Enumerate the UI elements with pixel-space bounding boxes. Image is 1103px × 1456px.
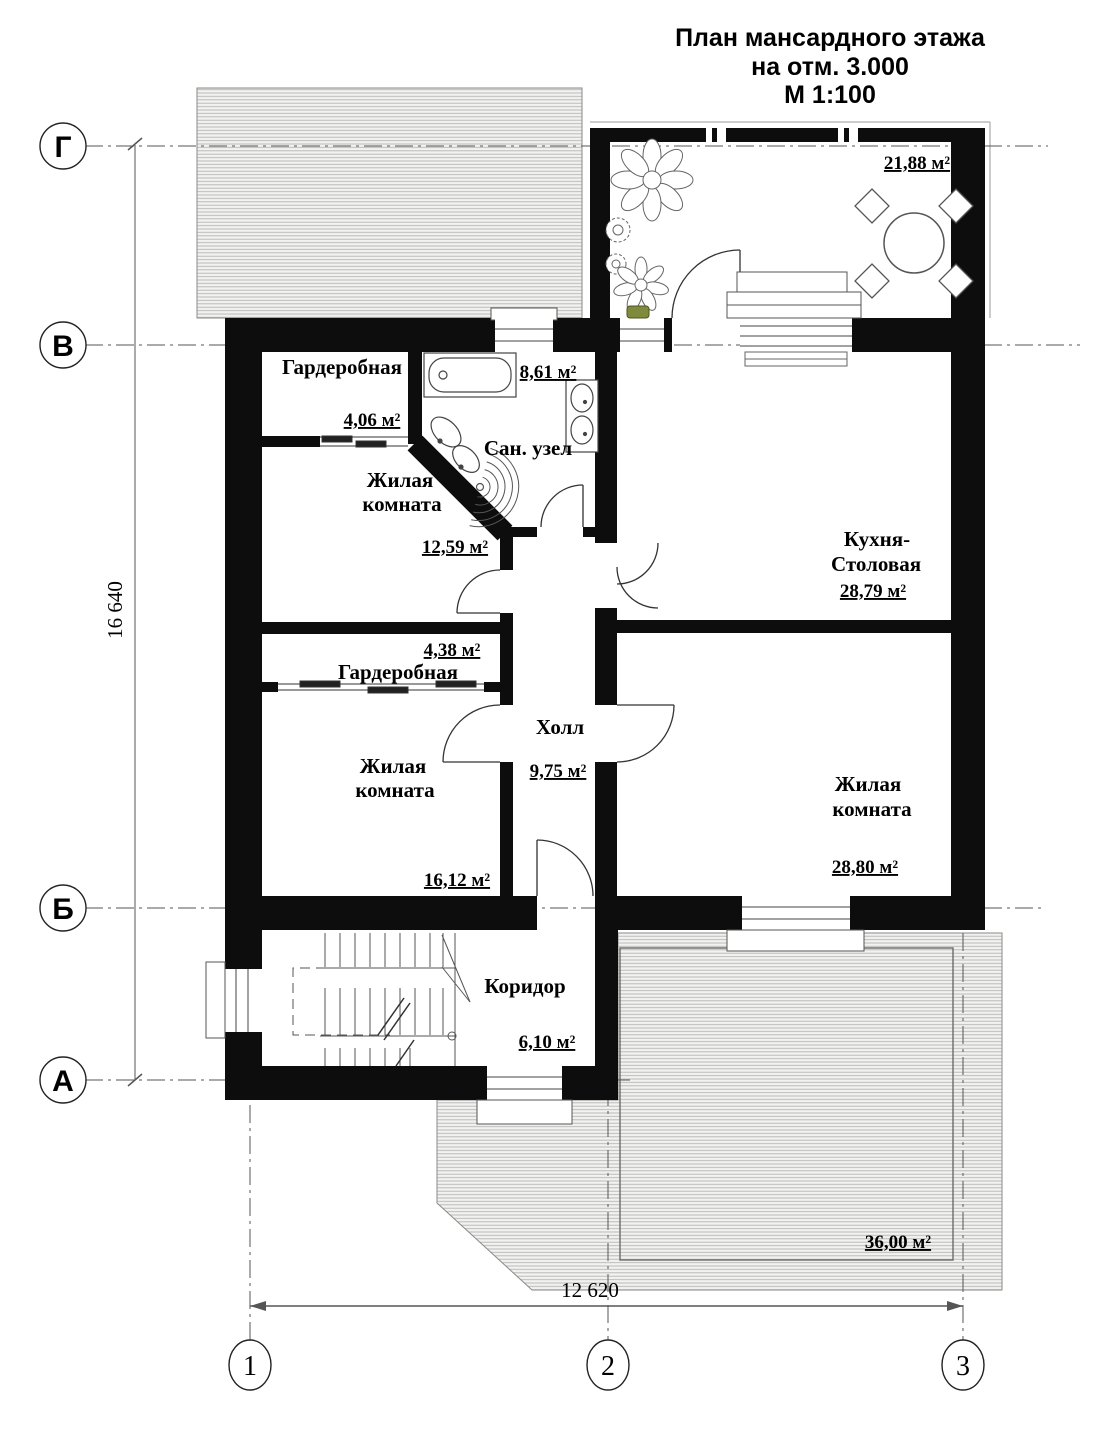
floor-plan-page: 16 640 12 620 [0,0,1103,1456]
title-line-1: План мансардного этажа [675,24,986,52]
dimension-height-label: 16 640 [103,581,127,639]
room-label: комната [355,778,435,802]
axis-marker-label: Г [54,131,71,164]
floor-plan-drawing: 16 640 12 620 [0,0,1103,1456]
room-label: Гардеробная [282,355,402,379]
plant-icon-small-1 [606,218,630,242]
roof-hatch-top-left [197,88,582,318]
room-area-label: 12,59 м² [422,537,488,558]
bathtub-icon [424,353,516,397]
staircase [293,933,470,1066]
room-label: Коридор [484,974,565,998]
room-label: комната [832,797,912,821]
room-area-label: 28,79 м² [840,581,906,602]
axis-marker-label: А [52,1065,74,1098]
plant-pot-icon [627,306,649,318]
drawing-title: План мансардного этажа на отм. 3.000 М 1… [675,24,986,109]
axis-marker-label: 1 [243,1351,257,1382]
room-area-label: 4,06 м² [344,410,401,431]
room-area-label: 4,38 м² [424,640,481,661]
room-area-label: 16,12 м² [424,870,490,891]
terrace-bench-icon [727,272,861,318]
room-area-label: 21,88 м² [884,153,950,174]
room-area-label: 36,00 м² [865,1232,931,1253]
dim-arrow-left [250,1301,266,1311]
room-label: Жилая [360,754,427,778]
room-area-label: 28,80 м² [832,857,898,878]
plant-icon-large [611,139,693,221]
axis-marker-label: 2 [601,1351,615,1382]
dimension-width-label: 12 620 [561,1278,619,1302]
axis-marker-label: В [52,330,74,363]
axis-marker-label: 3 [956,1351,970,1382]
room-area-label: 9,75 м² [530,761,587,782]
room-label: Холл [536,715,585,739]
room-label: комната [362,492,442,516]
room-label: Столовая [831,552,921,576]
wall-right [951,128,985,930]
title-line-2: на отм. 3.000 [751,53,909,81]
axis-marker-label: Б [52,893,74,926]
room-label: Жилая [835,772,902,796]
room-label: Гардеробная [338,660,458,684]
dim-arrow-right [947,1301,963,1311]
room-area-label: 6,10 м² [519,1032,576,1053]
title-line-3: М 1:100 [784,81,876,109]
room-label: Сан. узел [484,436,573,460]
room-area-label: 8,61 м² [520,362,577,383]
room-label: Кухня- [844,527,910,551]
room-label: Жилая [367,468,434,492]
